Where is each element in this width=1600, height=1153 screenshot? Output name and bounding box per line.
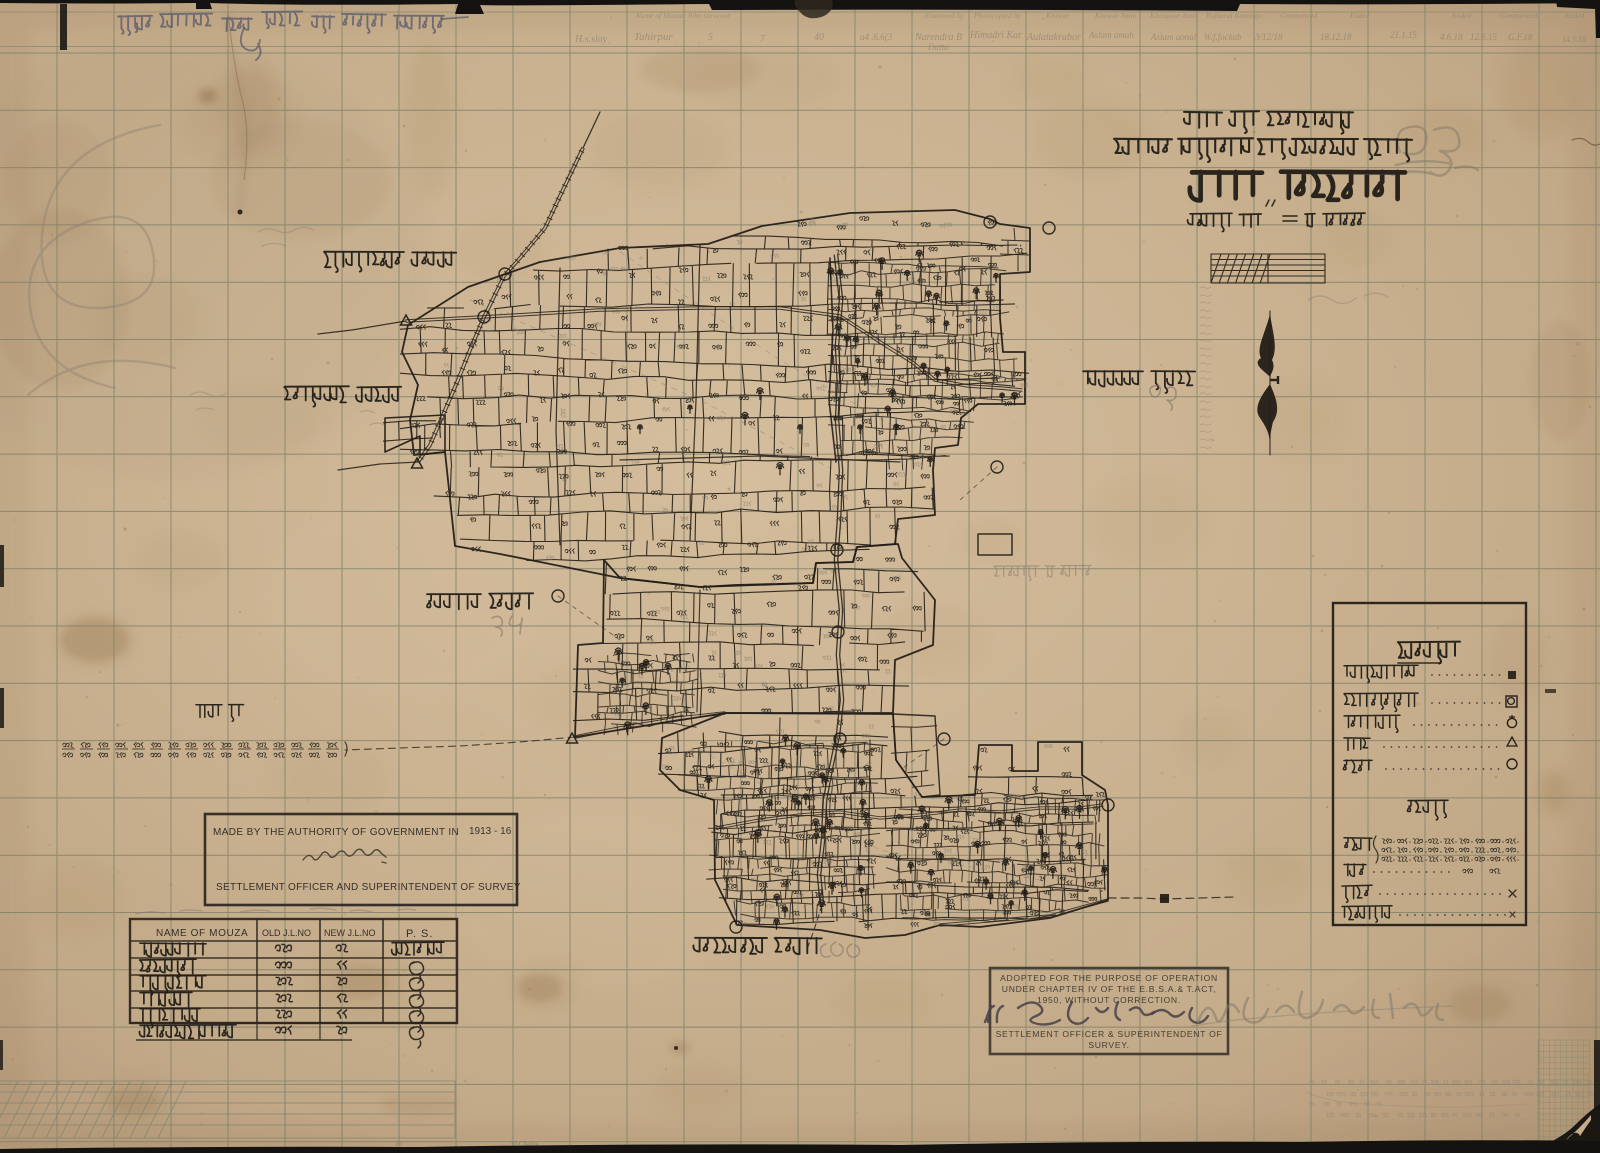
- svg-text:21.1.15: 21.1.15: [1390, 30, 1418, 40]
- svg-text:Ended: Ended: [1349, 11, 1369, 20]
- svg-text:Aslam amah: Aslam amah: [1088, 30, 1134, 40]
- svg-text:Kistwar Amin: Kistwar Amin: [1094, 11, 1137, 20]
- svg-text:Photocopied by: Photocopied by: [973, 11, 1022, 20]
- svg-text:SURVEY.: SURVEY.: [1088, 1040, 1129, 1050]
- svg-text:H.s.slay: H.s.slay: [574, 34, 608, 45]
- svg-text:Ended: Ended: [1451, 11, 1471, 20]
- svg-text:SETTLEMENT OFFICER AND SUPERI: SETTLEMENT OFFICER AND SUPERINTENDENT OF…: [216, 882, 521, 893]
- svg-text:Commenced: Commenced: [1280, 11, 1317, 20]
- svg-text:MADE BY THE AUTHORITY OF GOVER: MADE BY THE AUTHORITY OF GOVERNMENT IN: [213, 827, 459, 838]
- svg-text:Datta: Datta: [927, 42, 949, 52]
- svg-text:ADOPTED FOR THE PURPOSE OF OPE: ADOPTED FOR THE PURPOSE OF OPERATION: [1000, 973, 1218, 983]
- svg-text:12.6.15: 12.6.15: [1470, 32, 1498, 42]
- svg-text:18.12.18: 18.12.18: [1320, 32, 1352, 42]
- svg-text:Tahirpur: Tahirpur: [634, 31, 673, 43]
- svg-text:Khanpoor Amin: Khanpoor Amin: [1149, 11, 1198, 20]
- svg-text:Commenced: Commenced: [1500, 11, 1537, 20]
- svg-text:W.f.fockab: W.f.fockab: [1204, 32, 1242, 42]
- svg-text:Name of Mouza: Name of Mouza: [635, 11, 684, 20]
- svg-text:14.5.18: 14.5.18: [1562, 35, 1586, 44]
- svg-text:Himadri Kar: Himadri Kar: [969, 30, 1022, 41]
- svg-text:3/12/18: 3/12/18: [1254, 32, 1283, 42]
- svg-text:20: 20: [395, 1140, 403, 1148]
- svg-text:G.F.18: G.F.18: [1508, 32, 1533, 42]
- svg-text:40: 40: [814, 32, 824, 43]
- svg-text:Who surveyed: Who surveyed: [688, 11, 731, 20]
- svg-text:P. S.: P. S.: [406, 928, 433, 940]
- svg-text:NAME OF MOUZA: NAME OF MOUZA: [156, 928, 248, 939]
- svg-text:UNDER CHAPTER IV OF THE E.B.S.: UNDER CHAPTER IV OF THE E.B.S.A.& T.ACT,: [1002, 984, 1216, 994]
- svg-text:a4 .6.6(3: a4 .6.6(3: [860, 32, 893, 42]
- svg-text:Aslam aonal: Aslam aonal: [1150, 32, 1197, 42]
- svg-text:4.6.18: 4.6.18: [1440, 32, 1463, 42]
- svg-text:SETTLEMENT OFFICER & SUPERINTE: SETTLEMENT OFFICER & SUPERINTENDENT OF: [996, 1029, 1223, 1039]
- svg-text:5: 5: [708, 32, 713, 43]
- svg-text:Examined by: Examined by: [924, 11, 965, 20]
- svg-text:Aulatakrabor: Aulatakrabor: [1026, 32, 1081, 43]
- svg-text:NEW J.L.NO: NEW J.L.NO: [324, 928, 376, 938]
- svg-text:Ended: Ended: [1564, 11, 1584, 20]
- svg-text:Kistwar: Kistwar: [1045, 11, 1070, 20]
- svg-text:1913 - 16: 1913 - 16: [469, 826, 512, 837]
- svg-text:Bujharat Kanungo: Bujharat Kanungo: [1206, 11, 1262, 20]
- svg-text:OLD J.L.NO: OLD J.L.NO: [262, 928, 311, 938]
- svg-text:1950, WITHOUT CORRECTION.: 1950, WITHOUT CORRECTION.: [1037, 995, 1181, 1005]
